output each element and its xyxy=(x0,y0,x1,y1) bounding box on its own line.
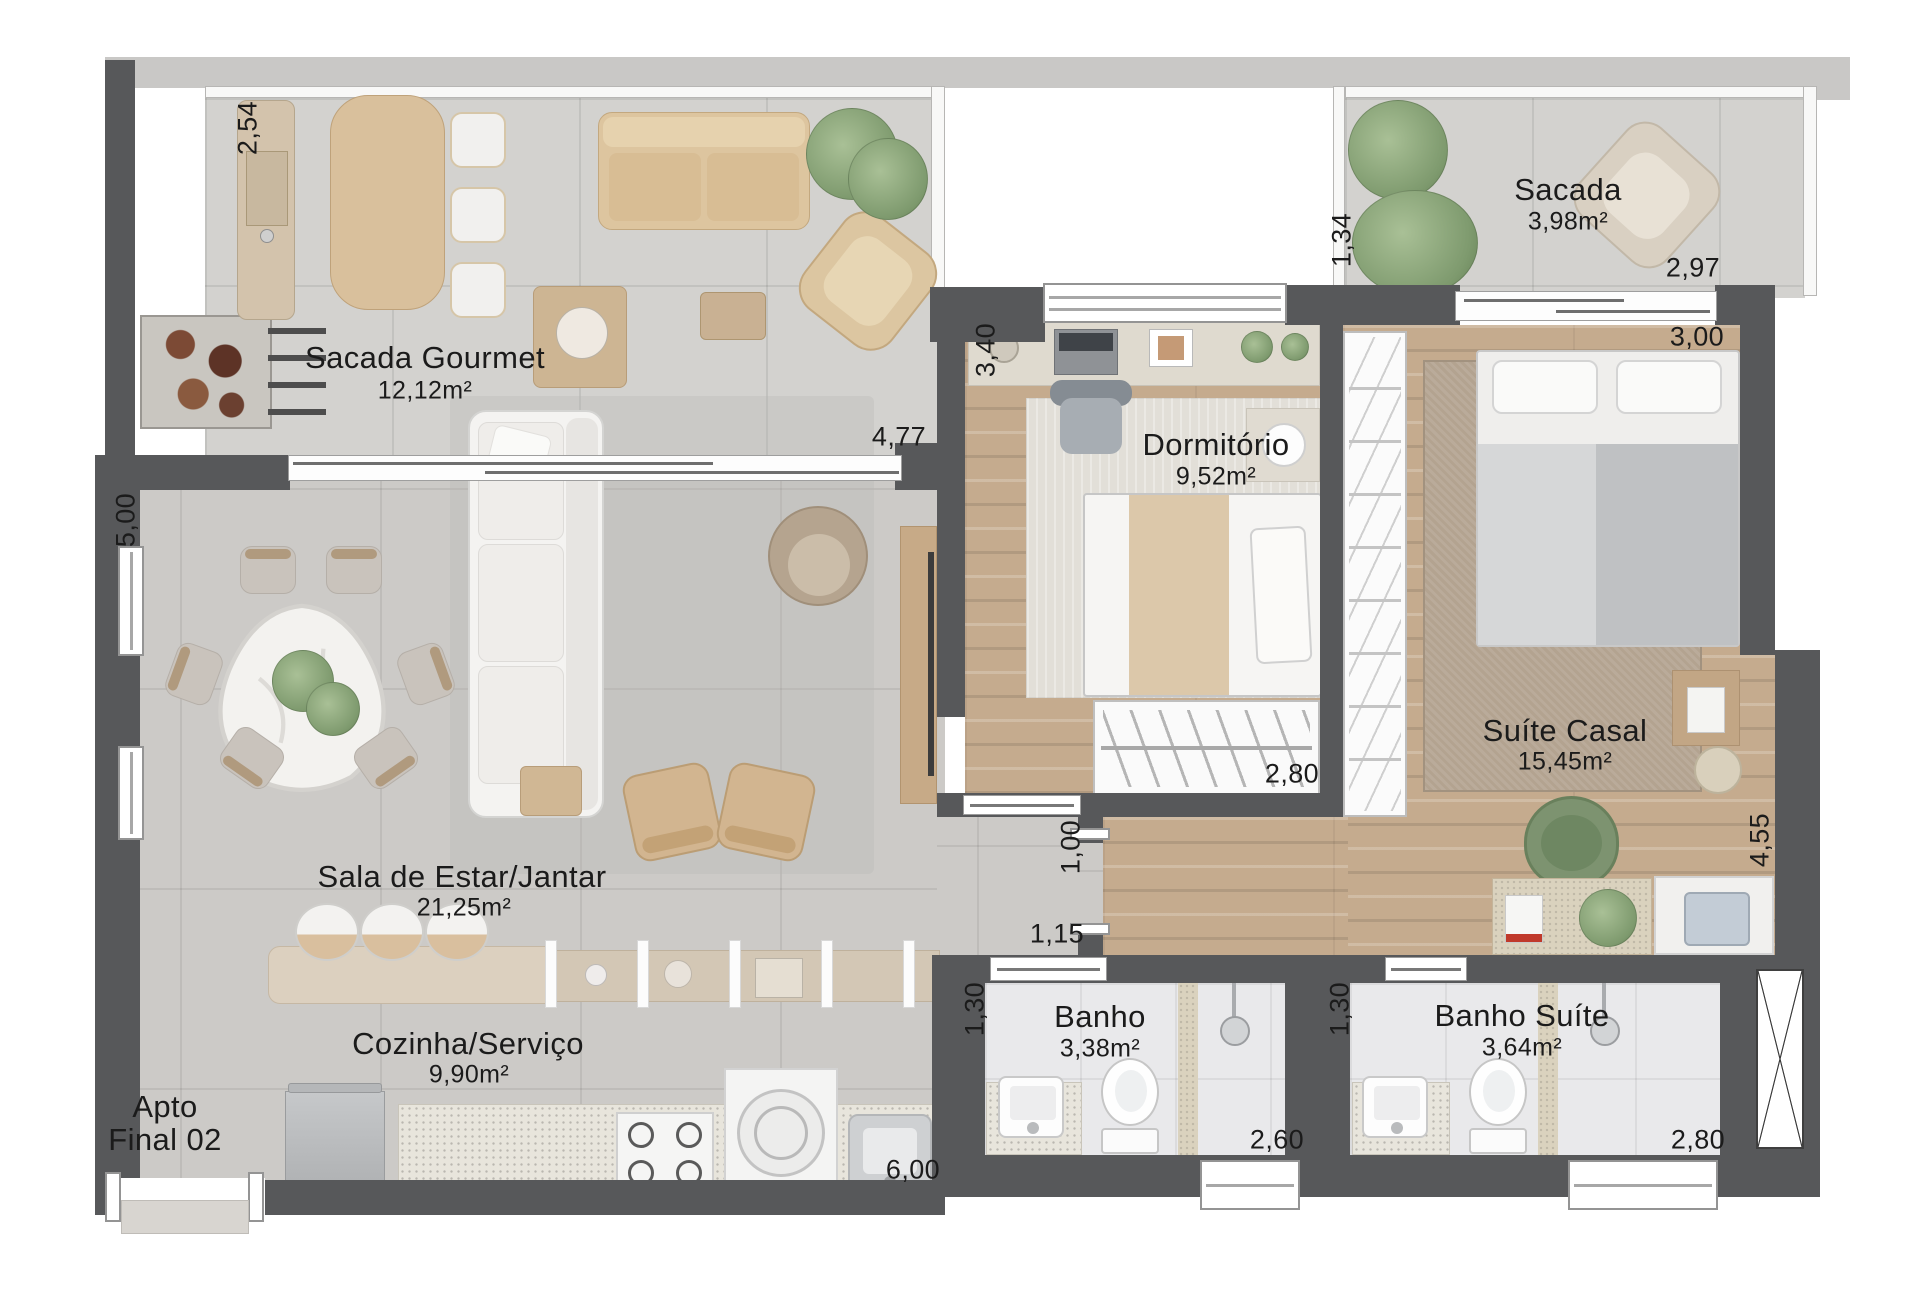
window-mullion xyxy=(1206,1184,1294,1187)
banho-suite-door xyxy=(1385,957,1467,981)
bed-pillow xyxy=(1249,526,1312,665)
dining-chair xyxy=(326,546,382,594)
room-area-dormitorio: 9,52m² xyxy=(1176,463,1256,492)
window-mullion xyxy=(1049,296,1281,299)
chair-back xyxy=(331,549,377,559)
banho-toilet xyxy=(1098,1058,1162,1158)
banho-window xyxy=(1200,1160,1300,1210)
window-mullion xyxy=(130,552,133,650)
sofa-back xyxy=(603,117,805,147)
shower-divider xyxy=(1178,983,1198,1155)
shelf-post xyxy=(821,940,833,1008)
magazine xyxy=(1505,895,1543,943)
dim-label: 1,30 xyxy=(960,982,991,1036)
banho-suite-window xyxy=(1568,1160,1718,1210)
round-lounge-chair xyxy=(768,506,868,606)
wall xyxy=(1285,285,1460,325)
door-track xyxy=(293,462,713,465)
armchair-cushion xyxy=(816,228,921,334)
room-label-cozinha: Cozinha/Serviço xyxy=(352,1026,584,1062)
banho-suite-sink xyxy=(1362,1076,1428,1138)
sewing-machine xyxy=(1684,892,1750,946)
desk-chair xyxy=(1050,380,1132,458)
suite-nightstand xyxy=(1672,670,1740,746)
toilet-bowl xyxy=(1101,1058,1159,1126)
faucet xyxy=(1391,1122,1403,1134)
room-label-banho-suite: Banho Suíte xyxy=(1434,998,1609,1034)
gourmet-side-table xyxy=(700,292,766,340)
sewing-table xyxy=(1654,876,1774,955)
chair-back xyxy=(641,824,715,855)
dim-label: 1,34 xyxy=(1327,213,1358,267)
toilet-seat xyxy=(1483,1070,1515,1112)
gourmet-chair xyxy=(450,187,506,243)
bed-pillow xyxy=(1616,360,1722,414)
sliding-door-sacada xyxy=(1455,291,1717,321)
room-area-sacada-gourmet: 12,12m² xyxy=(378,377,473,406)
banho-suite-toilet xyxy=(1466,1058,1530,1158)
shower-head-icon xyxy=(1220,1016,1250,1046)
suite-closet xyxy=(1343,331,1407,817)
dim-label: 1,00 xyxy=(1056,820,1087,874)
floor-lamp xyxy=(1694,746,1742,794)
tv xyxy=(928,552,934,776)
sacada-railing-right xyxy=(1803,86,1817,296)
refrigerator xyxy=(285,1091,385,1193)
dim-label: 2,80 xyxy=(1265,759,1319,790)
sacada-railing-top xyxy=(1345,86,1805,98)
room-area-sacada: 3,98m² xyxy=(1528,208,1608,237)
wood-armchair xyxy=(714,760,818,864)
toilet-tank xyxy=(1469,1128,1527,1154)
room-area-banho-suite: 3,64m² xyxy=(1482,1034,1562,1063)
shelf-post xyxy=(545,940,557,1008)
bar-stool xyxy=(360,903,424,961)
room-label-banho: Banho xyxy=(1054,999,1146,1035)
window-mullion xyxy=(1574,1184,1712,1187)
window-mullion xyxy=(1049,308,1281,311)
room-label-sacada: Sacada xyxy=(1514,172,1622,208)
single-bed xyxy=(1083,493,1322,697)
sink-basin xyxy=(1374,1086,1420,1120)
laptop xyxy=(1054,329,1118,375)
top-slab-band xyxy=(105,57,1850,88)
counter-item xyxy=(755,958,803,998)
dormitorio-window xyxy=(1043,283,1287,323)
banho-sink xyxy=(998,1076,1064,1138)
dim-label: 3,40 xyxy=(971,323,1002,377)
wall xyxy=(1320,287,1343,817)
chair-back xyxy=(245,549,291,559)
dim-label: 4,77 xyxy=(872,422,926,453)
toilet-bowl xyxy=(1469,1058,1527,1126)
sofa-cushion xyxy=(707,153,799,221)
door-track xyxy=(1464,299,1624,302)
gourmet-sofa xyxy=(598,112,810,230)
toilet-tank xyxy=(1101,1128,1159,1154)
counter-item xyxy=(664,960,692,988)
bed-throw xyxy=(1478,444,1596,645)
sofa-cushion xyxy=(609,153,701,221)
window xyxy=(118,746,144,840)
wall xyxy=(105,60,135,485)
washer xyxy=(724,1068,838,1198)
room-label-sala: Sala de Estar/Jantar xyxy=(318,859,607,895)
sliding-door-gourmet xyxy=(288,455,902,481)
gourmet-sink xyxy=(246,151,288,226)
dim-label: 6,00 xyxy=(886,1155,940,1186)
gourmet-coffee-table xyxy=(533,286,627,388)
green-chair xyxy=(1524,796,1619,888)
top-slab-step xyxy=(1817,57,1850,100)
sofa-cushion xyxy=(478,544,564,662)
door-track xyxy=(485,471,899,474)
door-track xyxy=(1556,310,1710,313)
shelf-post xyxy=(903,940,915,1008)
banho-door xyxy=(990,957,1107,981)
dim-label: 2,54 xyxy=(233,101,264,155)
plant xyxy=(1348,100,1448,200)
wall xyxy=(1740,285,1775,655)
door-leaf xyxy=(970,804,1074,807)
apartment-label-line2: Final 02 xyxy=(108,1122,222,1158)
suite-hall-floor xyxy=(1103,817,1348,957)
bed-blanket xyxy=(1129,495,1229,695)
burner xyxy=(676,1122,702,1148)
bed-pillow xyxy=(1492,360,1598,414)
dim-label: 4,55 xyxy=(1745,813,1776,867)
desk-plant xyxy=(1281,333,1309,361)
suite-desk xyxy=(1492,878,1652,955)
dim-label: 2,80 xyxy=(1671,1125,1725,1156)
plant xyxy=(1352,190,1478,296)
bar-stool xyxy=(295,903,359,961)
room-area-sala: 21,25m² xyxy=(417,894,512,923)
toilet-seat xyxy=(1115,1070,1147,1112)
door-jamb xyxy=(105,1172,121,1222)
washer-ring xyxy=(754,1106,808,1160)
sofa-side-unit xyxy=(520,766,582,816)
dim-label: 5,00 xyxy=(111,493,142,547)
desk-plant xyxy=(1579,889,1637,947)
room-label-dormitorio: Dormitório xyxy=(1143,427,1290,463)
photo xyxy=(1158,336,1184,360)
magazine-stripe xyxy=(1506,934,1542,942)
wall xyxy=(1775,650,1820,1000)
dining-chair xyxy=(240,546,296,594)
sink-basin xyxy=(1010,1086,1056,1120)
wood-armchair xyxy=(620,760,724,864)
table-plant xyxy=(306,682,360,736)
shelf-post xyxy=(637,940,649,1008)
dim-label: 1,30 xyxy=(1325,982,1356,1036)
dim-label: 1,15 xyxy=(1030,919,1084,950)
entry-threshold xyxy=(121,1200,249,1234)
dormitorio-door xyxy=(963,795,1081,815)
double-bed xyxy=(1476,350,1740,647)
room-area-suite-casal: 15,45m² xyxy=(1518,748,1613,777)
wardrobe-rod xyxy=(1101,746,1312,750)
faucet xyxy=(1027,1122,1039,1134)
plant xyxy=(848,138,928,220)
laptop-screen xyxy=(1059,333,1113,351)
floor-plan: Sacada Gourmet 12,12m² Sacada 3,98m² Dor… xyxy=(0,0,1920,1291)
door-leaf xyxy=(1391,968,1461,971)
window xyxy=(118,546,144,656)
gourmet-chair xyxy=(450,112,506,168)
dim-label: 3,00 xyxy=(1670,322,1724,353)
chair-cushion xyxy=(788,534,850,596)
apartment-label-line1: Apto xyxy=(132,1089,197,1125)
bbq-grill xyxy=(140,315,272,429)
room-label-suite-casal: Suíte Casal xyxy=(1483,713,1648,749)
desk-plant xyxy=(1241,331,1273,363)
dim-label: 2,60 xyxy=(1250,1125,1304,1156)
dim-label: 2,97 xyxy=(1666,253,1720,284)
chair-cushion xyxy=(1541,815,1602,871)
window-mullion xyxy=(130,752,133,834)
tray xyxy=(556,307,608,359)
room-area-banho: 3,38m² xyxy=(1060,1035,1140,1064)
room-label-sacada-gourmet: Sacada Gourmet xyxy=(305,340,545,376)
picture-frame xyxy=(1149,329,1193,367)
room-area-cozinha: 9,90m² xyxy=(429,1061,509,1090)
book xyxy=(1687,687,1725,733)
burner xyxy=(628,1122,654,1148)
gourmet-dining-table xyxy=(330,95,445,310)
chair-seat xyxy=(1060,398,1122,454)
fridge-handle xyxy=(288,1083,382,1093)
chair-back xyxy=(723,824,797,855)
gourmet-chair xyxy=(450,262,506,318)
gourmet-faucet xyxy=(260,229,274,243)
shelf-post xyxy=(729,940,741,1008)
gourmet-railing-top xyxy=(205,86,945,98)
counter-item xyxy=(585,964,607,986)
wall xyxy=(937,287,965,717)
ventilation-shaft xyxy=(1756,969,1804,1149)
closet-shelves xyxy=(1349,337,1401,811)
door-leaf xyxy=(997,968,1100,971)
door-jamb xyxy=(248,1172,264,1222)
